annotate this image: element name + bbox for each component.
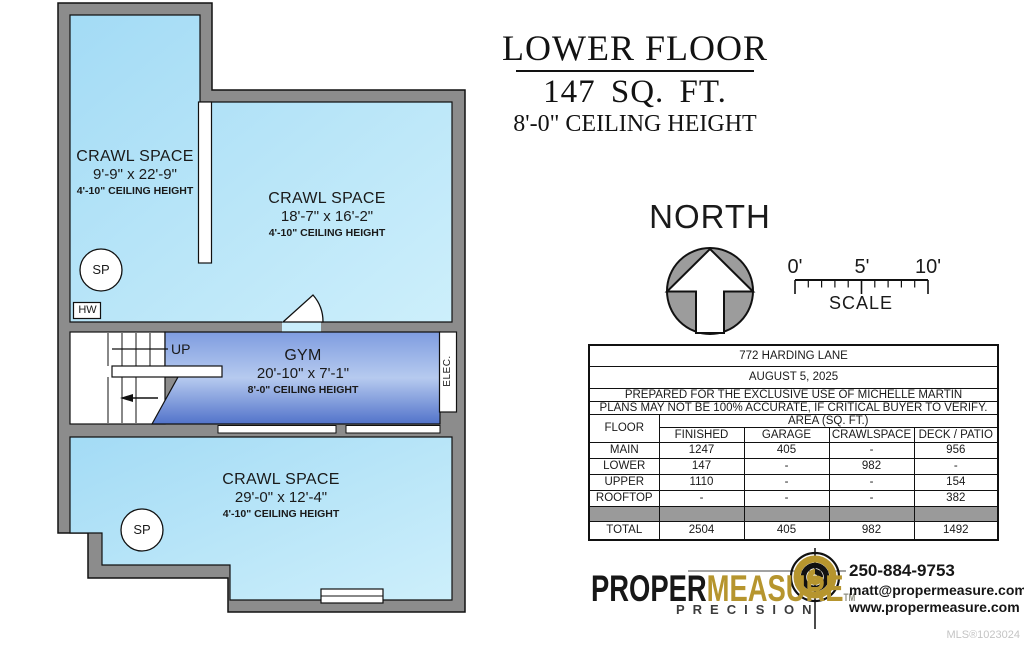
scale-tick-10: 10' — [910, 256, 946, 279]
stairwell — [70, 332, 165, 424]
sp-label-2: SP — [121, 522, 163, 537]
scale-tick-0: 0' — [782, 256, 808, 279]
stair-landing-rail — [112, 366, 222, 377]
contact-email: matt@propermeasure.com — [849, 582, 1024, 598]
disclaimer-note: PLANS MAY NOT BE 100% ACCURATE, IF CRITI… — [589, 401, 998, 414]
floor-ceiling-height: 8'-0" CEILING HEIGHT — [470, 110, 800, 138]
floor-area: 147 SQ. FT. — [470, 74, 800, 110]
area-header: AREA (SQ. FT.) — [659, 414, 998, 427]
col-header-deck-patio: DECK / PATIO — [914, 427, 998, 442]
table-row-lower: LOWER 147 - 982 - — [589, 458, 998, 474]
north-label: NORTH — [620, 198, 800, 236]
col-header-garage: GARAGE — [744, 427, 829, 442]
prepared-for-note: PREPARED FOR THE EXCLUSIVE USE OF MICHEL… — [589, 388, 998, 401]
floorplan-page: LOWER FLOOR 147 SQ. FT. 8'-0" CEILING HE… — [0, 0, 1024, 651]
sp-label-1: SP — [80, 262, 122, 277]
scale-tick-5: 5' — [849, 256, 875, 279]
floor-column-header: FLOOR — [589, 414, 659, 442]
floor-title: LOWER FLOOR — [470, 28, 800, 68]
scale-label: SCALE — [813, 293, 909, 314]
plan-date: AUGUST 5, 2025 — [589, 366, 998, 388]
room-label-gym: GYM 20'-10" x 7'-1" 8'-0" CEILING HEIGHT — [208, 346, 398, 397]
door-opening — [282, 321, 321, 333]
hw-label: HW — [74, 303, 101, 318]
title-underline — [516, 70, 754, 72]
col-header-finished: FINISHED — [659, 427, 744, 442]
room-label-crawl-2: CRAWL SPACE 18'-7" x 16'-2" 4'-10" CEILI… — [232, 189, 422, 240]
contact-website: www.propermeasure.com — [849, 599, 1020, 615]
table-row-upper: UPPER 1110 - - 154 — [589, 474, 998, 490]
room-label-crawl-3: CRAWL SPACE 29'-0" x 12'-4" 4'-10" CEILI… — [186, 470, 376, 521]
area-info-table: 772 HARDING LANE AUGUST 5, 2025 PREPARED… — [588, 344, 999, 541]
floor-title-block: LOWER FLOOR 147 SQ. FT. 8'-0" CEILING HE… — [470, 28, 800, 138]
gym-window-band-right — [346, 426, 440, 434]
elec-label: ELEC. — [439, 351, 457, 391]
gym-window-band-left — [218, 426, 336, 434]
table-row-total: TOTAL 2504 405 982 1492 — [589, 521, 998, 540]
table-spacer-row — [589, 506, 998, 521]
col-header-crawlspace: CRAWLSPACE — [829, 427, 914, 442]
north-compass-icon — [667, 248, 753, 334]
up-label: UP — [171, 341, 190, 357]
property-address: 772 HARDING LANE — [589, 345, 998, 366]
brand-tagline: PRECISION — [676, 602, 820, 617]
contact-phone: 250-884-9753 — [849, 561, 955, 581]
scale-ruler — [795, 280, 928, 294]
room-label-crawl-1: CRAWL SPACE 9'-9" x 22'-9" 4'-10" CEILIN… — [40, 147, 230, 198]
table-row-main: MAIN 1247 405 - 956 — [589, 442, 998, 458]
mls-number: MLS®1023024 — [925, 629, 1020, 641]
table-row-rooftop: ROOFTOP - - - 382 — [589, 490, 998, 506]
